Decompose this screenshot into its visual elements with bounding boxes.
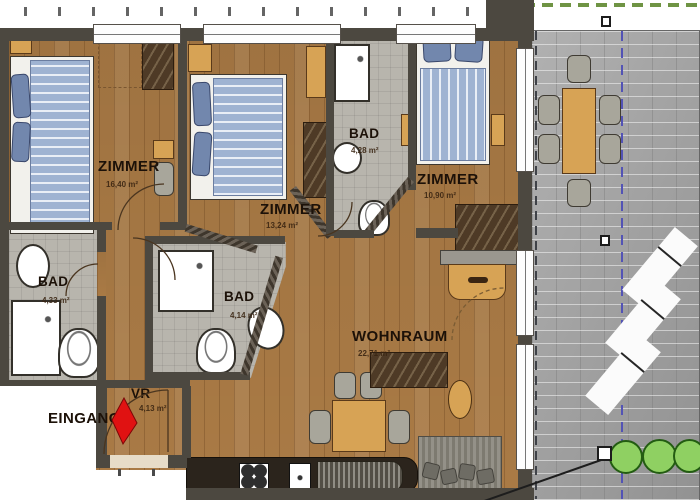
wall-bath-mid-bottom — [145, 372, 250, 380]
bed-duvet — [213, 78, 283, 196]
terrace-chair — [538, 95, 560, 125]
sofa-cushion — [476, 468, 495, 486]
sofa-cushion — [421, 461, 440, 480]
terrace-chair — [567, 179, 591, 207]
terrace-chair — [567, 55, 591, 83]
dining-chair — [388, 410, 410, 444]
survey-marker — [601, 16, 611, 27]
room-label-zimmer1: ZIMMER — [98, 158, 160, 175]
bush — [642, 439, 677, 474]
property-line-dashed — [621, 31, 623, 499]
terrace-edge-dashed-line — [535, 31, 537, 499]
terrace-boundary-dashed-line — [524, 3, 700, 7]
wall-bedroom1-bottom — [160, 222, 187, 230]
outside-area — [0, 386, 96, 500]
bed-pillow — [191, 131, 212, 176]
survey-marker — [600, 235, 610, 246]
sideboard-handle — [468, 277, 488, 283]
sofa — [418, 436, 502, 496]
toilet — [58, 328, 100, 378]
bed-pillow — [11, 122, 31, 163]
toilet — [196, 328, 236, 374]
room-label-bad-mid: BAD — [224, 289, 254, 304]
shower — [158, 250, 214, 312]
sideboard — [448, 264, 506, 300]
window — [93, 24, 181, 44]
terrace-chair — [599, 95, 621, 125]
door-opening — [97, 252, 106, 296]
terrace-chair — [538, 134, 560, 164]
room-label-wohnraum: WOHNRAUM — [352, 328, 448, 345]
terrace-table — [562, 88, 596, 174]
room-area-zimmer3: 10,90 m² — [424, 191, 456, 200]
bed-pillow — [192, 82, 212, 127]
dining-chair — [309, 410, 331, 444]
sofa-cushion — [458, 463, 476, 481]
room-label-bad-left: BAD — [38, 274, 68, 289]
room-label-zimmer3: ZIMMER — [417, 171, 479, 188]
wall-bedroom1-bottom — [0, 222, 112, 230]
wall-bath-top-right — [408, 40, 416, 190]
bush — [673, 439, 700, 473]
nightstand — [491, 114, 505, 146]
wall-bath-top-left — [326, 40, 334, 236]
wall-bedroom3-bottom — [416, 228, 458, 238]
kitchen-sink — [289, 463, 311, 490]
dining-chair — [334, 372, 356, 399]
room-label-vr: VR — [131, 386, 151, 401]
entrance-threshold — [118, 469, 178, 476]
sofa-cushion — [440, 468, 459, 486]
room-area-wohnraum: 22,71 m² — [358, 349, 390, 358]
wall-vr-right — [182, 386, 191, 458]
pouf — [448, 380, 472, 419]
room-area-zimmer2: 13,24 m² — [266, 221, 298, 230]
bed-pillow — [10, 73, 31, 118]
facade-ticks — [24, 7, 484, 16]
entrance-door-opening — [110, 455, 168, 468]
shelf — [440, 250, 525, 265]
nightstand — [188, 44, 212, 72]
terrace-door — [516, 250, 534, 336]
window — [396, 24, 476, 44]
desk — [306, 46, 326, 98]
window — [203, 24, 341, 44]
shelf — [153, 140, 174, 159]
window — [516, 48, 534, 172]
terrace-chair — [599, 134, 621, 164]
wall-bath-top-bottom — [334, 230, 374, 238]
entrance-label: EINGANG — [48, 410, 121, 427]
wall-bottom — [186, 488, 534, 500]
wall-left — [0, 28, 9, 390]
bed-duvet — [30, 60, 90, 230]
shower — [334, 44, 370, 102]
dining-table — [332, 400, 386, 452]
wall-bath-mid-left — [145, 242, 153, 378]
wardrobe — [455, 204, 519, 252]
room-area-bad-top: 4,28 m² — [351, 146, 379, 155]
window — [516, 344, 534, 470]
wall-bedroom-divider — [178, 40, 187, 222]
room-area-bad-mid: 4,14 m² — [230, 311, 258, 320]
bed-duvet — [420, 68, 486, 161]
room-area-zimmer1: 16,40 m² — [106, 180, 138, 189]
floor-plan: ZIMMER 16,40 m² ZIMMER 13,24 m² ZIMMER 1… — [0, 0, 700, 500]
wall-bath-left-right — [97, 222, 106, 388]
room-area-vr: 4,13 m² — [139, 404, 167, 413]
stove — [239, 463, 269, 490]
corner-pillar — [486, 0, 534, 30]
bush — [609, 440, 643, 474]
room-area-bad-left: 4,33 m² — [42, 296, 70, 305]
shower — [11, 300, 61, 376]
room-label-zimmer2: ZIMMER — [260, 201, 322, 218]
room-label-bad-top: BAD — [349, 126, 379, 141]
